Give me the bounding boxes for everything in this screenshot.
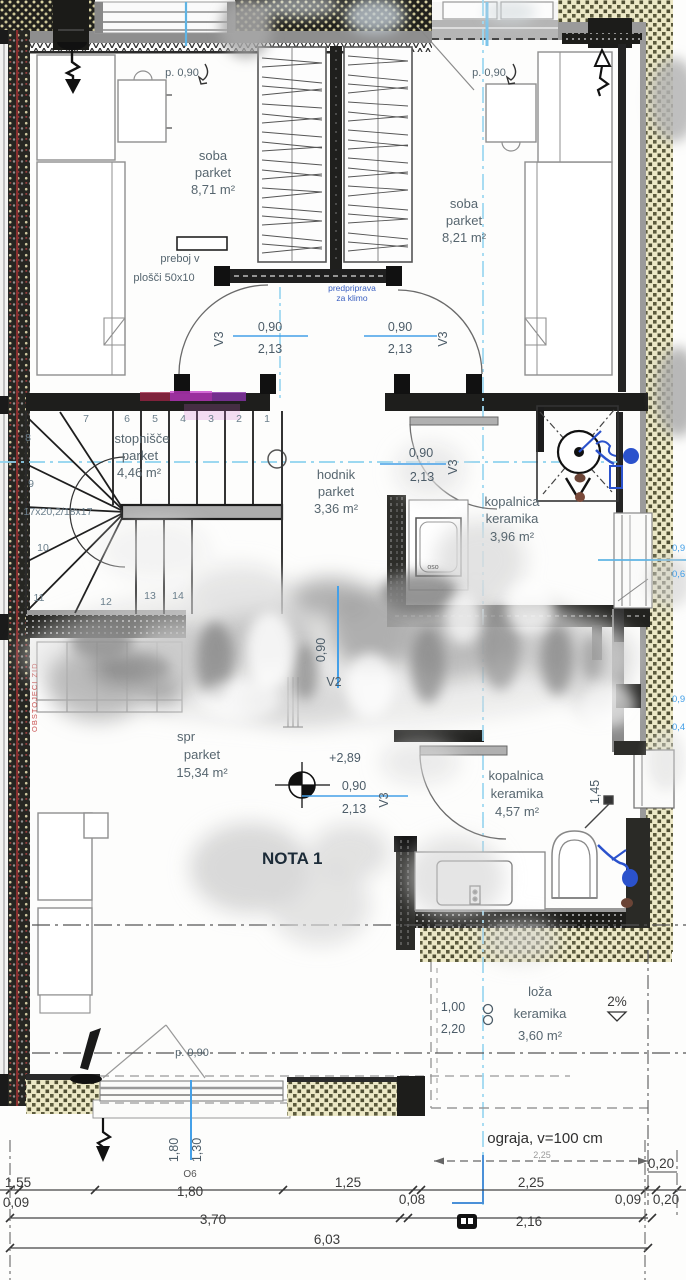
svg-text:0,9: 0,9	[672, 694, 685, 705]
svg-text:V3: V3	[377, 792, 391, 807]
svg-text:0,4: 0,4	[672, 722, 685, 733]
svg-text:1,30: 1,30	[190, 1138, 204, 1162]
svg-text:0,20: 0,20	[653, 1192, 679, 1207]
svg-text:3,96 m²: 3,96 m²	[490, 529, 535, 544]
svg-text:3,70: 3,70	[200, 1212, 226, 1227]
svg-text:2,13: 2,13	[410, 470, 434, 484]
svg-text:1,45: 1,45	[588, 780, 602, 804]
svg-text:4,57 m²: 4,57 m²	[495, 804, 540, 819]
svg-text:parket: parket	[446, 213, 483, 228]
svg-text:spr: spr	[177, 729, 196, 744]
svg-text:1,80: 1,80	[167, 1138, 181, 1162]
svg-text:0,90: 0,90	[388, 320, 412, 334]
svg-text:0,9: 0,9	[672, 543, 685, 554]
svg-text:stopnišče: stopnišče	[115, 431, 170, 446]
svg-text:p. 0,90: p. 0,90	[175, 1047, 209, 1059]
svg-text:V3: V3	[436, 331, 450, 346]
svg-text:4,46 m²: 4,46 m²	[117, 465, 162, 480]
svg-text:0,90: 0,90	[342, 779, 366, 793]
svg-text:keramika: keramika	[491, 786, 545, 801]
svg-text:ograja, v=100 cm: ograja, v=100 cm	[487, 1130, 602, 1147]
svg-text:+2,89: +2,89	[329, 751, 361, 765]
svg-text:0,20: 0,20	[648, 1156, 674, 1171]
svg-text:1,80: 1,80	[177, 1184, 203, 1199]
svg-text:0,90: 0,90	[258, 320, 282, 334]
svg-text:1: 1	[264, 413, 270, 425]
svg-text:kopalnica: kopalnica	[485, 494, 541, 509]
svg-text:2,20: 2,20	[441, 1022, 465, 1036]
svg-text:2,25: 2,25	[533, 1150, 551, 1160]
svg-text:0,09: 0,09	[615, 1192, 641, 1207]
svg-text:oso: oso	[427, 564, 438, 571]
svg-text:2%: 2%	[607, 994, 627, 1009]
svg-text:0,6: 0,6	[672, 569, 685, 580]
svg-text:0,08: 0,08	[399, 1192, 425, 1207]
svg-text:11: 11	[34, 592, 45, 604]
svg-text:0,09: 0,09	[3, 1195, 29, 1210]
svg-text:14: 14	[172, 590, 184, 602]
svg-text:9: 9	[28, 478, 34, 490]
svg-text:3,36 m²: 3,36 m²	[314, 501, 359, 516]
svg-text:1,25: 1,25	[335, 1175, 361, 1190]
svg-text:parket: parket	[195, 165, 232, 180]
svg-text:1,00: 1,00	[441, 1000, 465, 1014]
svg-text:predpriprava: predpriprava	[328, 283, 376, 293]
svg-text:8,71 m²: 8,71 m²	[191, 182, 236, 197]
svg-text:0,90: 0,90	[409, 446, 433, 460]
svg-text:5: 5	[152, 413, 158, 425]
svg-text:8: 8	[25, 432, 31, 444]
svg-text:3: 3	[208, 413, 214, 425]
svg-text:preboj v: preboj v	[160, 253, 200, 265]
svg-text:NOTA 1: NOTA 1	[262, 849, 322, 868]
svg-text:12: 12	[100, 596, 112, 608]
svg-text:3,60 m²: 3,60 m²	[518, 1028, 563, 1043]
svg-text:parket: parket	[318, 484, 355, 499]
svg-text:4: 4	[180, 413, 186, 425]
svg-text:loža: loža	[528, 984, 553, 999]
svg-text:soba: soba	[450, 196, 479, 211]
svg-text:V3: V3	[446, 459, 460, 474]
svg-text:2,13: 2,13	[258, 342, 282, 356]
svg-text:soba: soba	[199, 148, 228, 163]
svg-text:V2: V2	[326, 675, 341, 689]
svg-text:plošči 50x10: plošči 50x10	[133, 272, 194, 284]
svg-text:2,13: 2,13	[342, 802, 366, 816]
svg-text:8,21 m²: 8,21 m²	[442, 230, 487, 245]
svg-text:0,90: 0,90	[314, 638, 328, 662]
svg-text:2,13: 2,13	[388, 342, 412, 356]
svg-text:p. 0,90: p. 0,90	[165, 67, 199, 79]
svg-text:keramika: keramika	[514, 1006, 568, 1021]
svg-text:2,16: 2,16	[516, 1214, 542, 1229]
svg-text:keramika: keramika	[486, 511, 540, 526]
svg-text:O6: O6	[183, 1169, 197, 1180]
svg-text:6,03: 6,03	[314, 1232, 340, 1247]
svg-text:hodnik: hodnik	[317, 467, 356, 482]
svg-text:6: 6	[124, 413, 130, 425]
svg-text:V3: V3	[212, 331, 226, 346]
svg-text:p. 0,90: p. 0,90	[472, 67, 506, 79]
svg-text:za klimo: za klimo	[336, 293, 367, 303]
svg-text:kopalnica: kopalnica	[489, 768, 545, 783]
svg-text:17x20,2/18x17: 17x20,2/18x17	[24, 506, 93, 518]
svg-text:7: 7	[83, 413, 89, 425]
svg-text:2: 2	[236, 413, 242, 425]
svg-text:parket: parket	[122, 448, 159, 463]
svg-text:2,25: 2,25	[518, 1175, 544, 1190]
svg-text:10: 10	[37, 542, 49, 554]
svg-text:15,34 m²: 15,34 m²	[176, 765, 228, 780]
svg-text:1,55: 1,55	[5, 1175, 31, 1190]
svg-text:13: 13	[144, 590, 156, 602]
svg-text:parket: parket	[184, 747, 221, 762]
